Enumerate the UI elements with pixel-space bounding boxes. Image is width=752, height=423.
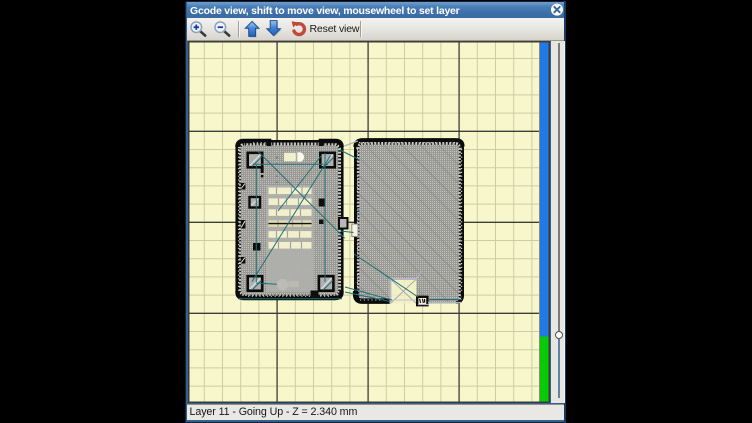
- svg-text:Reset view: Reset view: [310, 23, 360, 35]
